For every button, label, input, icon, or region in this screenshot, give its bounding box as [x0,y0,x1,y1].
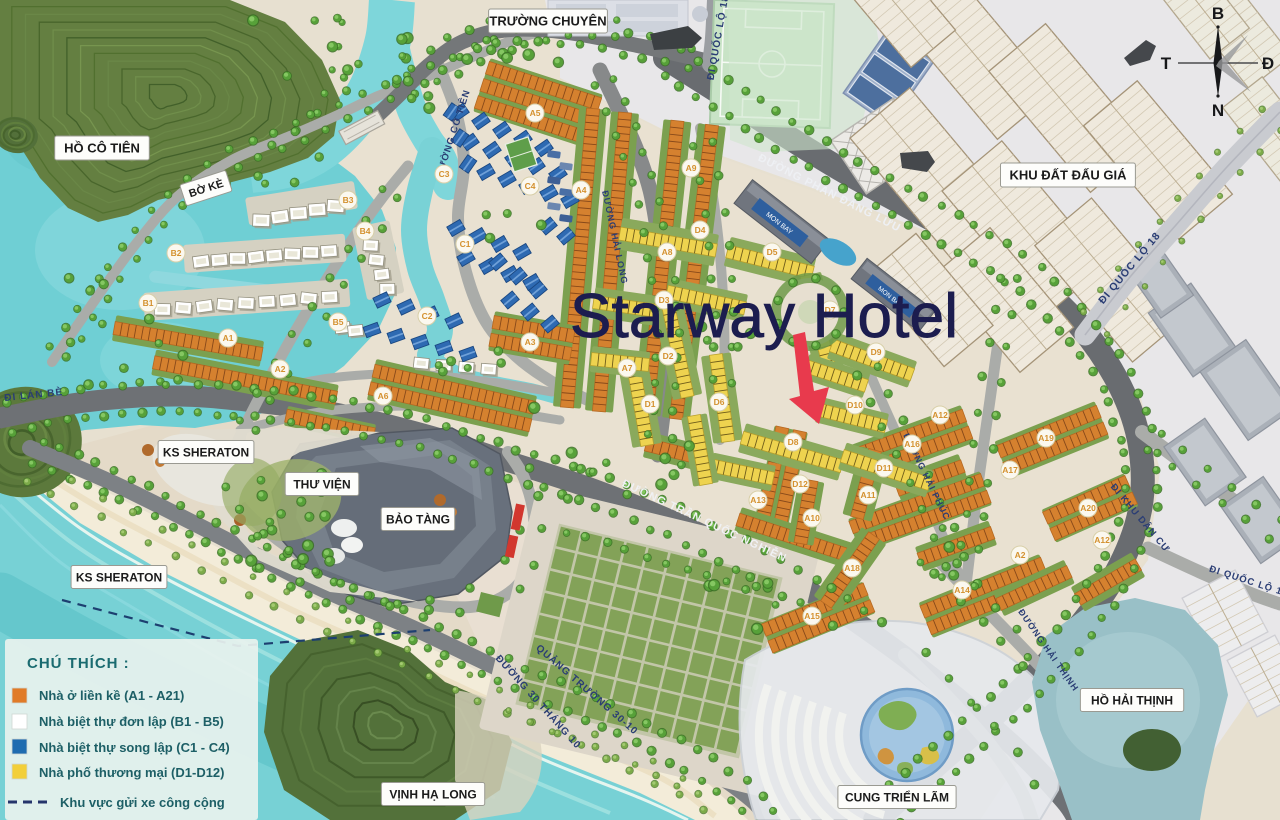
svg-text:D8: D8 [788,437,799,447]
svg-text:A19: A19 [1038,433,1054,443]
svg-text:A16: A16 [904,439,920,449]
svg-text:CHÚ THÍCH :: CHÚ THÍCH : [27,654,130,672]
svg-text:D4: D4 [695,225,706,235]
svg-text:A13: A13 [750,495,766,505]
svg-text:VỊNH HẠ LONG: VỊNH HẠ LONG [389,787,476,801]
svg-text:A12: A12 [932,410,948,420]
svg-text:C1: C1 [460,239,471,249]
svg-text:A10: A10 [804,513,820,523]
svg-text:TRƯỜNG CHUYÊN: TRƯỜNG CHUYÊN [489,14,606,29]
svg-text:BẢO TÀNG: BẢO TÀNG [386,511,450,526]
svg-text:D5: D5 [767,247,778,257]
svg-text:D12: D12 [792,479,808,489]
svg-text:N: N [1212,101,1224,120]
svg-text:A20: A20 [1080,503,1096,513]
svg-text:HỒ HẢI THỊNH: HỒ HẢI THỊNH [1091,692,1173,707]
svg-text:A17: A17 [1002,465,1018,475]
svg-text:B4: B4 [360,226,371,236]
svg-text:KS SHERATON: KS SHERATON [163,445,249,459]
svg-text:A8: A8 [662,247,673,257]
svg-text:A9: A9 [686,163,697,173]
svg-text:Starway Hotel: Starway Hotel [570,282,958,351]
svg-text:Nhà phố thương mại (D1-D12): Nhà phố thương mại (D1-D12) [39,765,225,780]
svg-text:A2: A2 [275,364,286,374]
svg-text:C4: C4 [525,181,536,191]
svg-text:KHU ĐẤT ĐẤU GIÁ: KHU ĐẤT ĐẤU GIÁ [1010,168,1128,183]
svg-text:Nhà biệt thự song lập (C1 - C4: Nhà biệt thự song lập (C1 - C4) [39,740,230,755]
svg-text:A2: A2 [1015,550,1026,560]
svg-text:D6: D6 [714,397,725,407]
svg-text:CUNG TRIỂN LÃM: CUNG TRIỂN LÃM [845,789,949,804]
svg-text:B5: B5 [333,317,344,327]
svg-text:Nhà biệt thự đơn lập (B1 - B5): Nhà biệt thự đơn lập (B1 - B5) [39,714,224,729]
svg-text:A6: A6 [378,391,389,401]
svg-text:B3: B3 [343,195,354,205]
svg-text:A7: A7 [622,363,633,373]
svg-text:D11: D11 [876,463,891,473]
svg-text:D1: D1 [645,399,656,409]
svg-text:A3: A3 [525,337,536,347]
svg-text:D10: D10 [847,400,863,410]
svg-text:Nhà ở liền kề (A1 - A21): Nhà ở liền kề (A1 - A21) [39,688,184,703]
svg-text:A15: A15 [804,611,820,621]
svg-text:THƯ VIỆN: THƯ VIỆN [293,476,350,491]
svg-text:HỒ CÔ TIÊN: HỒ CÔ TIÊN [64,141,140,156]
svg-text:Đ: Đ [1262,54,1274,73]
svg-text:C2: C2 [422,311,433,321]
svg-text:A11: A11 [860,490,875,500]
svg-text:A5: A5 [530,108,541,118]
svg-text:KS SHERATON: KS SHERATON [76,570,162,584]
svg-text:D2: D2 [663,351,674,361]
svg-text:A4: A4 [576,185,587,195]
svg-text:B1: B1 [143,298,154,308]
svg-text:B: B [1212,4,1224,23]
svg-text:T: T [1161,54,1172,73]
svg-text:A1: A1 [223,333,234,343]
svg-text:B2: B2 [171,248,182,258]
svg-text:Khu vực gửi xe công cộng: Khu vực gửi xe công cộng [60,795,225,810]
svg-text:A18: A18 [844,563,860,573]
svg-text:A12: A12 [1094,535,1110,545]
svg-text:C3: C3 [439,169,450,179]
svg-text:A14: A14 [954,585,970,595]
